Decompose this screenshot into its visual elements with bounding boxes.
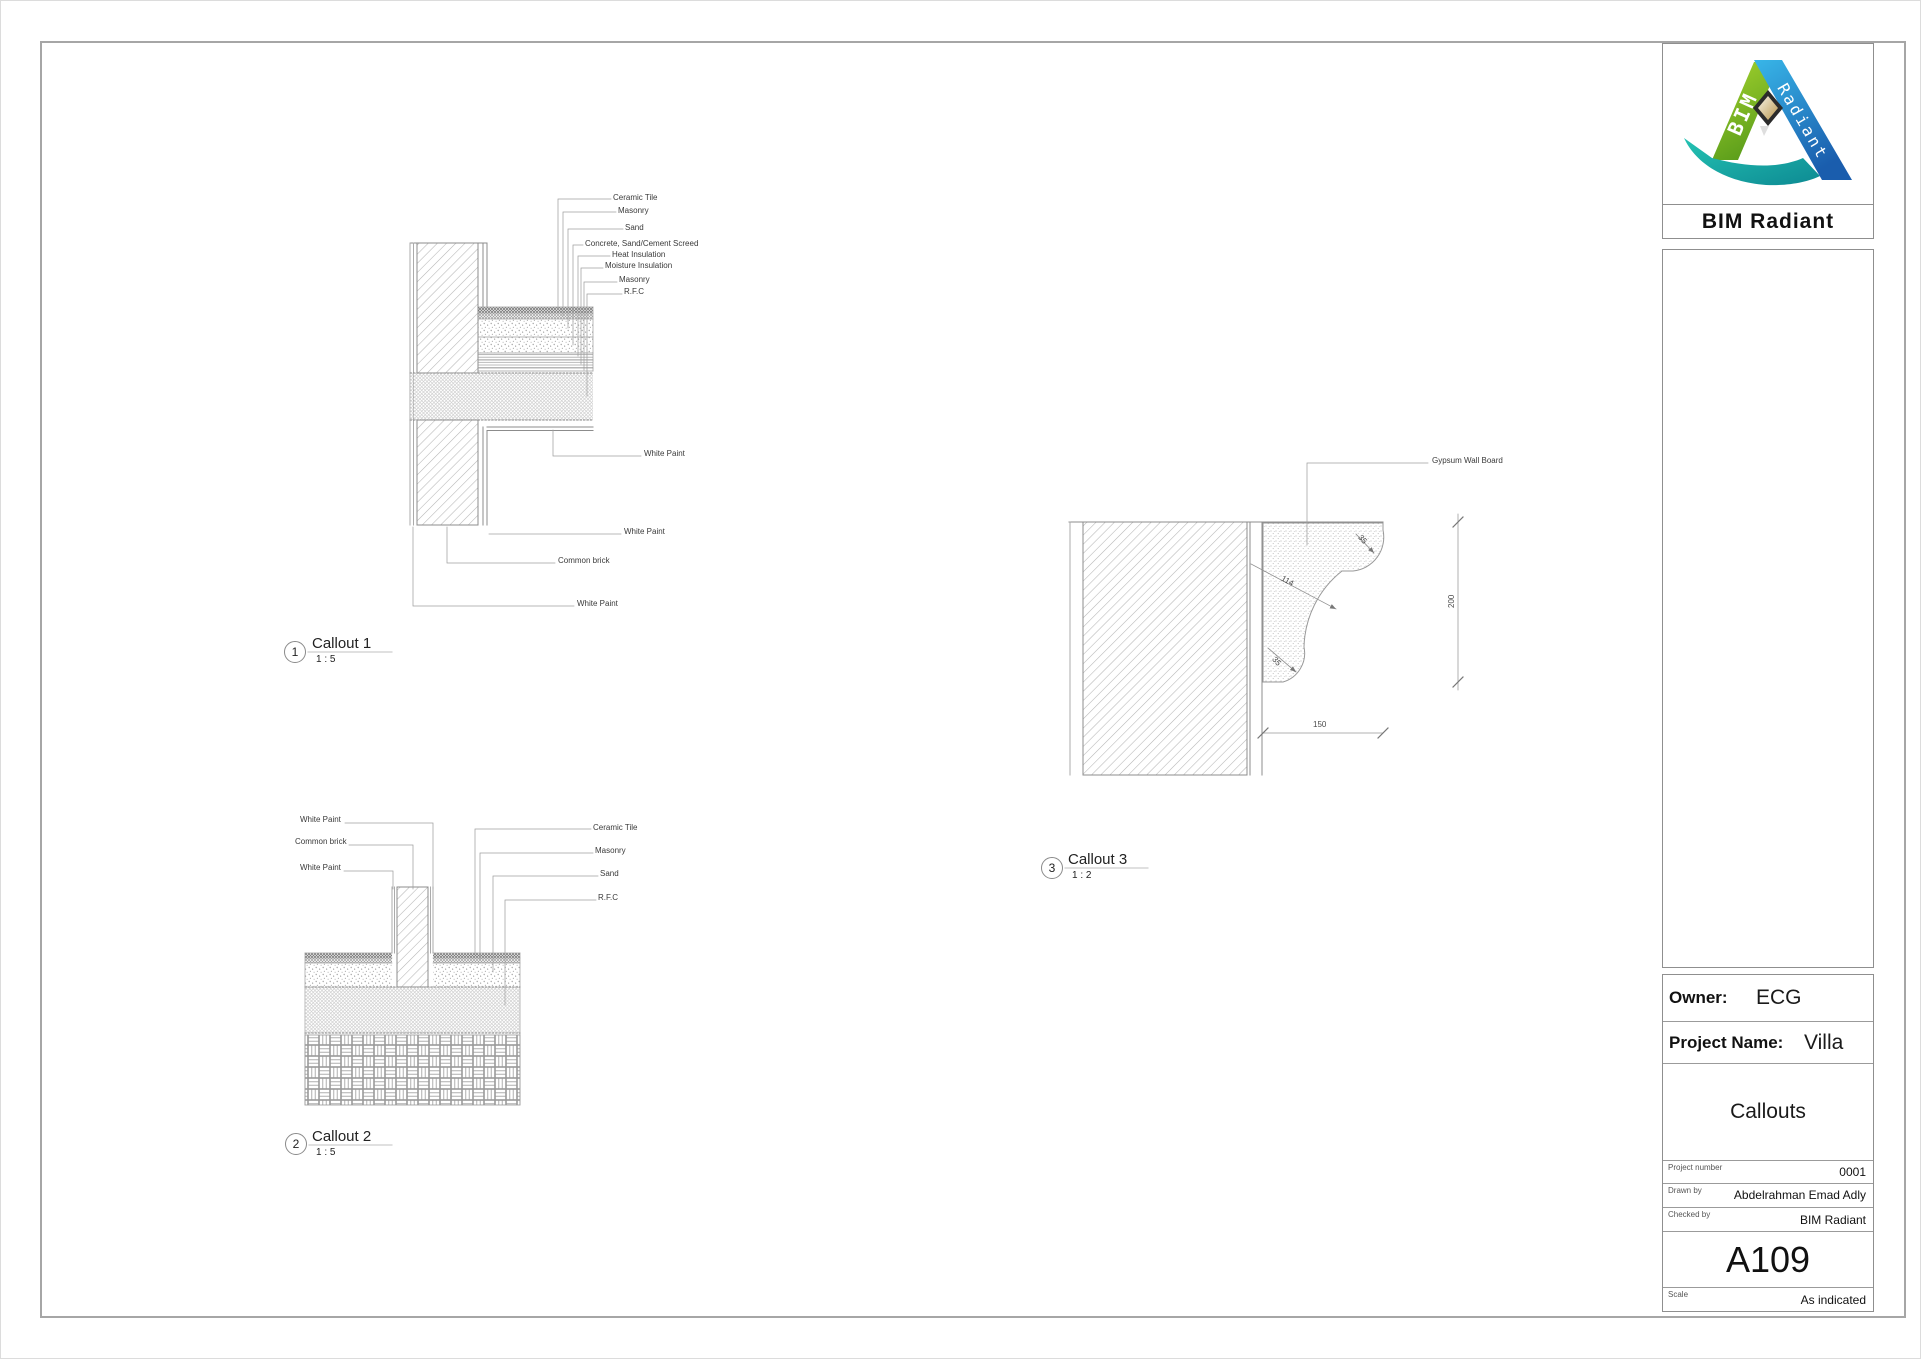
material-label: Moisture Insulation — [605, 262, 672, 271]
width-dimension: 150 — [1313, 720, 1326, 729]
project-name-label: Project Name: — [1669, 1033, 1783, 1053]
material-label: White Paint — [300, 816, 341, 825]
material-label: White Paint — [624, 528, 665, 537]
title-block-logo-box: BIM Radiant BIM Radiant — [1662, 43, 1874, 239]
project-name-row: Project Name: Villa — [1663, 1021, 1873, 1064]
logo-text-radiant: Radiant — [1773, 80, 1832, 163]
drawn-by-label: Drawn by — [1668, 1186, 1702, 1195]
bim-radiant-logo: BIM Radiant — [1668, 46, 1868, 202]
viewport-number-badge[interactable]: 3 — [1041, 857, 1063, 879]
material-label: R.F.C — [624, 288, 644, 297]
project-name-value: Villa — [1804, 1031, 1843, 1055]
owner-row: Owner: ECG — [1663, 975, 1873, 1021]
sheet-border — [40, 41, 1906, 1318]
viewport-title[interactable]: Callout 3 — [1068, 851, 1127, 868]
viewport-scale: 1 : 5 — [316, 1147, 335, 1158]
checked-by-label: Checked by — [1668, 1210, 1710, 1219]
title-block-revision-box — [1662, 249, 1874, 968]
scale-label: Scale — [1668, 1290, 1688, 1299]
drawn-by-value: Abdelrahman Emad Adly — [1734, 1188, 1866, 1202]
viewport-title[interactable]: Callout 1 — [312, 635, 371, 652]
checked-by-value: BIM Radiant — [1800, 1213, 1866, 1227]
material-label: White Paint — [577, 600, 618, 609]
owner-value: ECG — [1756, 986, 1802, 1010]
viewport-number-badge[interactable]: 1 — [284, 641, 306, 663]
viewport-number: 2 — [293, 1137, 300, 1151]
checked-by-row: Checked by BIM Radiant — [1663, 1207, 1873, 1232]
drawing-sheet: Ceramic Tile Masonry Sand Concrete, Sand… — [0, 0, 1921, 1359]
viewport-number-badge[interactable]: 2 — [285, 1133, 307, 1155]
material-label: Gypsum Wall Board — [1432, 457, 1503, 466]
company-logo: BIM Radiant — [1663, 44, 1873, 204]
project-number-row: Project number 0001 — [1663, 1160, 1873, 1183]
owner-label: Owner: — [1669, 988, 1728, 1008]
material-label: Concrete, Sand/Cement Screed — [585, 240, 698, 249]
company-name: BIM Radiant — [1663, 204, 1873, 239]
material-label: Ceramic Tile — [613, 194, 657, 203]
material-label: Masonry — [595, 847, 626, 856]
sheet-number: A109 — [1663, 1231, 1873, 1287]
viewport-title[interactable]: Callout 2 — [312, 1128, 371, 1145]
drawn-by-row: Drawn by Abdelrahman Emad Adly — [1663, 1183, 1873, 1207]
material-label: Masonry — [618, 207, 649, 216]
material-label: Heat Insulation — [612, 251, 665, 260]
material-label: White Paint — [644, 450, 685, 459]
material-label: R.F.C — [598, 894, 618, 903]
scale-row: Scale As indicated — [1663, 1287, 1873, 1311]
sheet-title: Callouts — [1663, 1063, 1873, 1159]
viewport-number: 1 — [292, 645, 299, 659]
title-block-info-box: Owner: ECG Project Name: Villa Callouts … — [1662, 974, 1874, 1312]
viewport-scale: 1 : 2 — [1072, 870, 1091, 881]
viewport-number: 3 — [1049, 861, 1056, 875]
material-label: Ceramic Tile — [593, 824, 637, 833]
material-label: Common brick — [558, 557, 610, 566]
material-label: Masonry — [619, 276, 650, 285]
project-number-label: Project number — [1668, 1163, 1722, 1172]
material-label: Sand — [600, 870, 619, 879]
material-label: Common brick — [295, 838, 347, 847]
material-label: Sand — [625, 224, 644, 233]
viewport-scale: 1 : 5 — [316, 654, 335, 665]
height-dimension: 200 — [1447, 595, 1456, 608]
material-label: White Paint — [300, 864, 341, 873]
scale-value: As indicated — [1801, 1293, 1866, 1307]
project-number-value: 0001 — [1839, 1165, 1866, 1179]
